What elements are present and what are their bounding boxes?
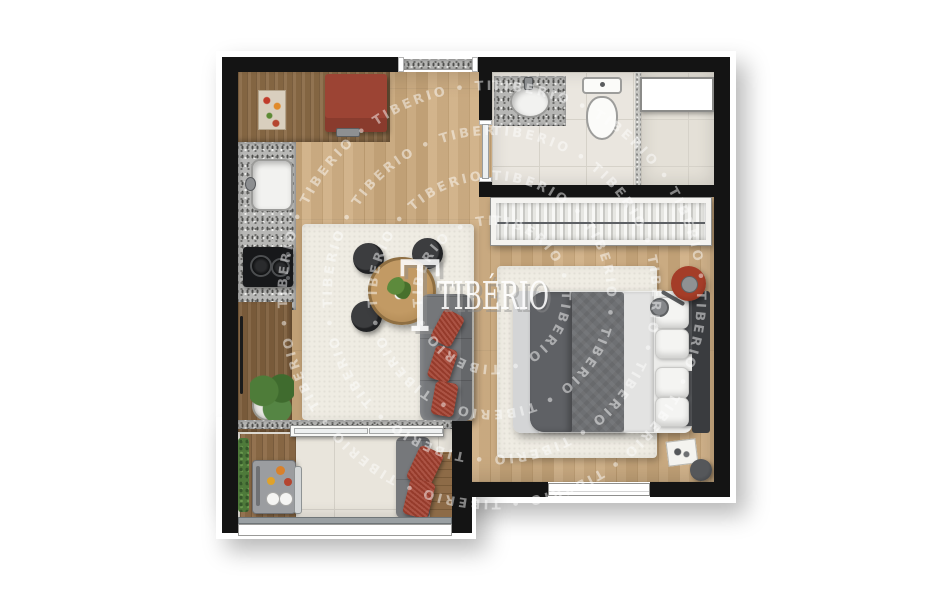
- grill-food-2: [284, 478, 292, 486]
- sliding-door-panel-1: [294, 428, 368, 434]
- bedroom-decor-knob: [650, 298, 669, 317]
- wall-bottom-right-segment: [650, 482, 730, 497]
- bathroom-wall-niche: [640, 77, 714, 112]
- floor-plan-canvas: TIBERIO • TIBERIO • TIBERIO • TIBERIO • …: [0, 0, 950, 596]
- grill-plate-2: [279, 492, 293, 506]
- wall-top-left: [222, 57, 398, 72]
- refrigerator: [325, 74, 387, 132]
- refrigerator-handle: [336, 128, 360, 137]
- side-table-tray: [681, 276, 698, 293]
- grill-plate-1: [266, 492, 280, 506]
- burner-left: [250, 255, 272, 277]
- kitchen-plant: [250, 374, 294, 422]
- bed-duvet-fold: [530, 292, 572, 432]
- bed-pillow-2: [655, 329, 689, 359]
- grill-food-1: [276, 466, 285, 475]
- bed-sheet-band: [624, 292, 654, 432]
- entrance-threshold: [404, 59, 472, 70]
- kitchen-faucet: [245, 177, 256, 191]
- cooktop-knob-1: [286, 252, 290, 256]
- bathroom-door: [482, 124, 489, 179]
- wall-bathroom-bottom: [479, 185, 730, 197]
- wall-bathroom-left-upper: [479, 72, 492, 122]
- toilet-bowl: [586, 96, 618, 140]
- bed-pillow-4: [655, 397, 689, 427]
- bedside-stool: [690, 459, 712, 481]
- table-centerpiece: [387, 277, 411, 301]
- balcony-door-handle: [294, 466, 302, 514]
- bed-pillow-3: [655, 367, 689, 399]
- balcony-sliding-door: [290, 425, 444, 437]
- bedroom-window: [548, 483, 650, 496]
- toilet-flush-button: [600, 82, 605, 87]
- wall-right: [714, 57, 730, 497]
- cooktop-knob-2: [286, 276, 290, 280]
- wardrobe: [490, 197, 712, 246]
- grill-food-3: [267, 477, 275, 485]
- wall-balcony-right: [452, 421, 472, 533]
- balcony-planter-hedge: [238, 438, 249, 512]
- burner-right: [271, 258, 290, 277]
- balcony-railing-bar: [238, 517, 452, 524]
- entrance-jamb-right: [472, 57, 478, 72]
- cabinet-handle: [240, 316, 243, 394]
- bed-headboard: [692, 291, 710, 433]
- kitchen-sink: [251, 159, 293, 211]
- grill-tools: [256, 466, 260, 506]
- wardrobe-rod: [497, 222, 705, 224]
- balcony-glass-railing: [238, 524, 452, 536]
- sliding-door-panel-2: [369, 428, 443, 434]
- wall-top-right: [478, 57, 730, 72]
- cutting-board: [258, 90, 286, 130]
- bathroom-faucet: [524, 77, 533, 90]
- wall-left: [222, 57, 238, 533]
